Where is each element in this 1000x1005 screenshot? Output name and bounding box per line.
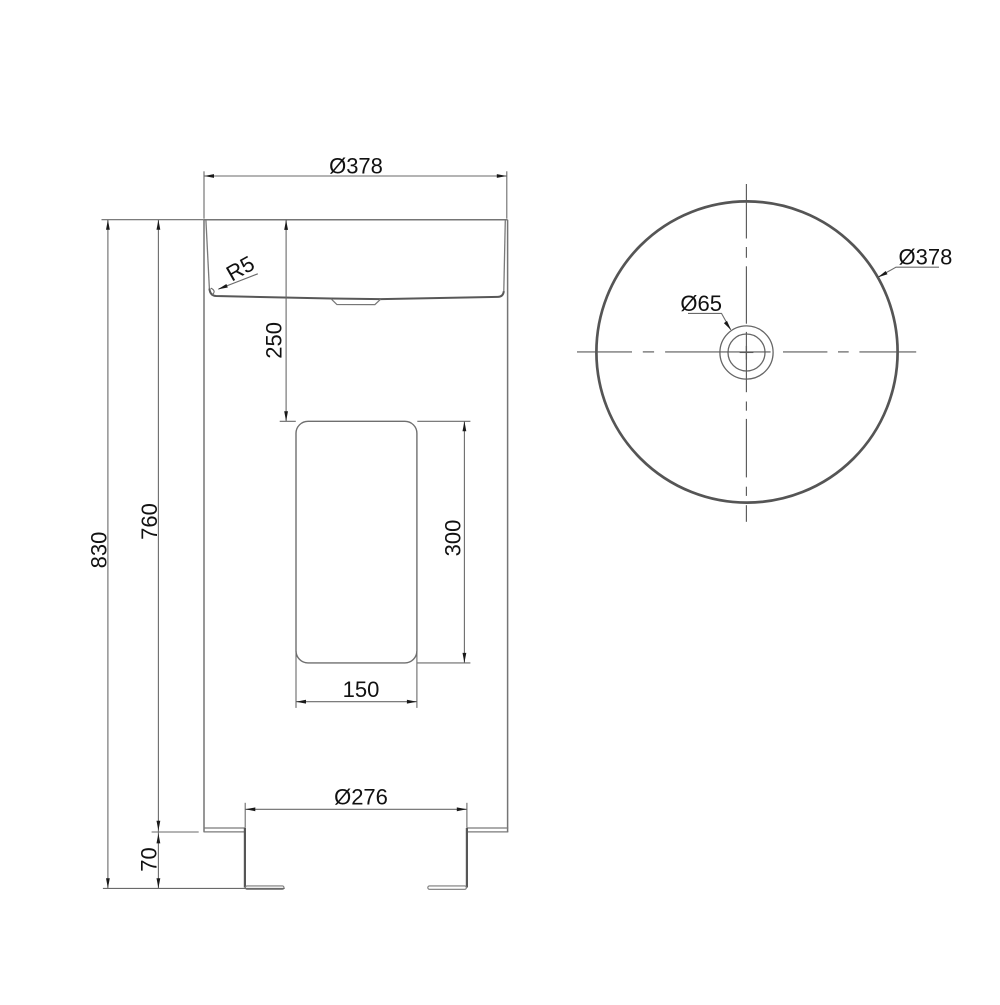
- svg-text:Ø378: Ø378: [898, 244, 952, 269]
- svg-text:760: 760: [137, 503, 162, 540]
- svg-text:Ø378: Ø378: [329, 154, 383, 179]
- svg-text:150: 150: [343, 677, 380, 702]
- svg-text:300: 300: [440, 520, 465, 557]
- svg-text:830: 830: [87, 532, 112, 569]
- svg-text:Ø65: Ø65: [680, 291, 722, 316]
- svg-text:Ø276: Ø276: [334, 784, 388, 809]
- svg-text:250: 250: [261, 322, 286, 359]
- svg-text:70: 70: [136, 847, 161, 871]
